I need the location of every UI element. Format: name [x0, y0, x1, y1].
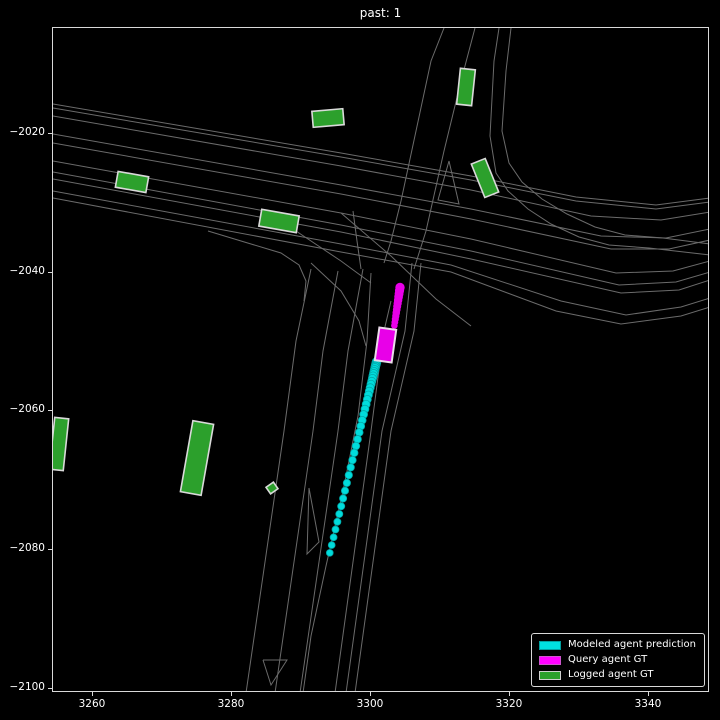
legend-item-query: Query agent GT	[539, 654, 696, 666]
plot-title: past: 1	[52, 6, 709, 20]
figure-canvas: { "title": "past: 1", "axes": { "x_ticks…	[0, 0, 720, 720]
y-tick-mark	[48, 272, 52, 273]
legend-item-prediction: Modeled agent prediction	[539, 639, 696, 651]
y-tick-label: −2100	[0, 681, 45, 693]
y-tick-label: −2080	[0, 542, 45, 554]
green-swatch-icon	[539, 671, 561, 680]
y-tick-label: −2060	[0, 403, 45, 415]
magenta-swatch-icon	[539, 656, 561, 665]
x-tick-label: 3280	[201, 698, 261, 710]
legend-label: Logged agent GT	[568, 669, 653, 681]
cyan-swatch-icon	[539, 641, 561, 650]
y-tick-label: −2040	[0, 265, 45, 277]
x-tick-mark	[92, 692, 93, 696]
x-tick-mark	[648, 692, 649, 696]
legend: Modeled agent prediction Query agent GT …	[531, 633, 705, 687]
legend-label: Modeled agent prediction	[568, 639, 696, 651]
legend-label: Query agent GT	[568, 654, 647, 666]
y-tick-mark	[48, 549, 52, 550]
x-tick-label: 3260	[62, 698, 122, 710]
y-tick-mark	[48, 410, 52, 411]
x-tick-mark	[509, 692, 510, 696]
x-tick-mark	[370, 692, 371, 696]
y-tick-mark	[48, 133, 52, 134]
y-tick-label: −2020	[0, 126, 45, 138]
scene-canvas	[53, 28, 708, 691]
plot-area: Modeled agent prediction Query agent GT …	[52, 27, 709, 692]
x-tick-mark	[231, 692, 232, 696]
x-tick-label: 3340	[618, 698, 678, 710]
y-tick-mark	[48, 688, 52, 689]
legend-item-logged: Logged agent GT	[539, 669, 696, 681]
x-tick-label: 3300	[340, 698, 400, 710]
x-tick-label: 3320	[479, 698, 539, 710]
